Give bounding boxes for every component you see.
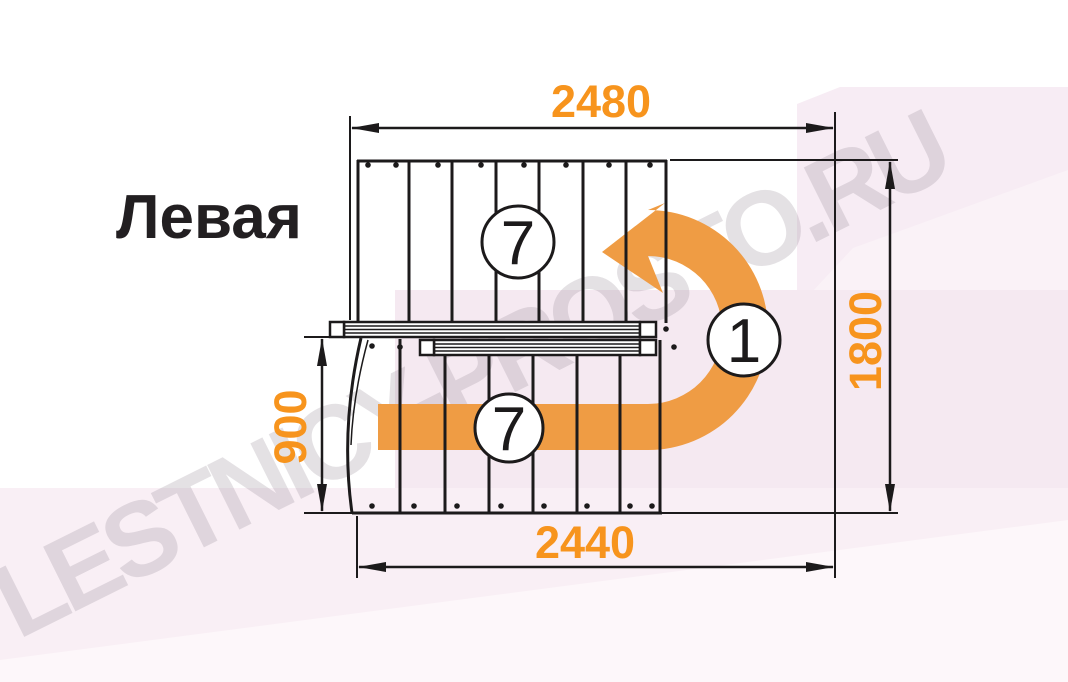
upper-beam-right-cap bbox=[640, 322, 656, 337]
staircase-plan-diagram: LESTNICY-PROSTO.RU bbox=[0, 0, 1068, 682]
dimension-label-top: 2480 bbox=[551, 76, 651, 127]
page-title: Левая bbox=[116, 183, 302, 252]
step-count-turn: 1 bbox=[708, 304, 780, 376]
dimension-label-left: 900 bbox=[265, 389, 316, 464]
dimension-label-bottom: 2440 bbox=[535, 517, 635, 568]
step-count-bottom-flight: 7 bbox=[475, 394, 543, 464]
dimension-label-right: 1800 bbox=[840, 291, 891, 391]
step-count-value: 7 bbox=[492, 395, 526, 464]
arrowhead-left bbox=[351, 123, 379, 133]
step-count-value: 7 bbox=[501, 209, 535, 278]
upper-beam-left-cap bbox=[330, 322, 344, 337]
lower-beam-left-cap bbox=[420, 340, 434, 355]
step-count-top-flight: 7 bbox=[482, 206, 554, 278]
arrowhead-up bbox=[317, 338, 327, 366]
lower-beam-right-cap bbox=[640, 340, 656, 355]
step-count-value: 1 bbox=[727, 307, 761, 376]
